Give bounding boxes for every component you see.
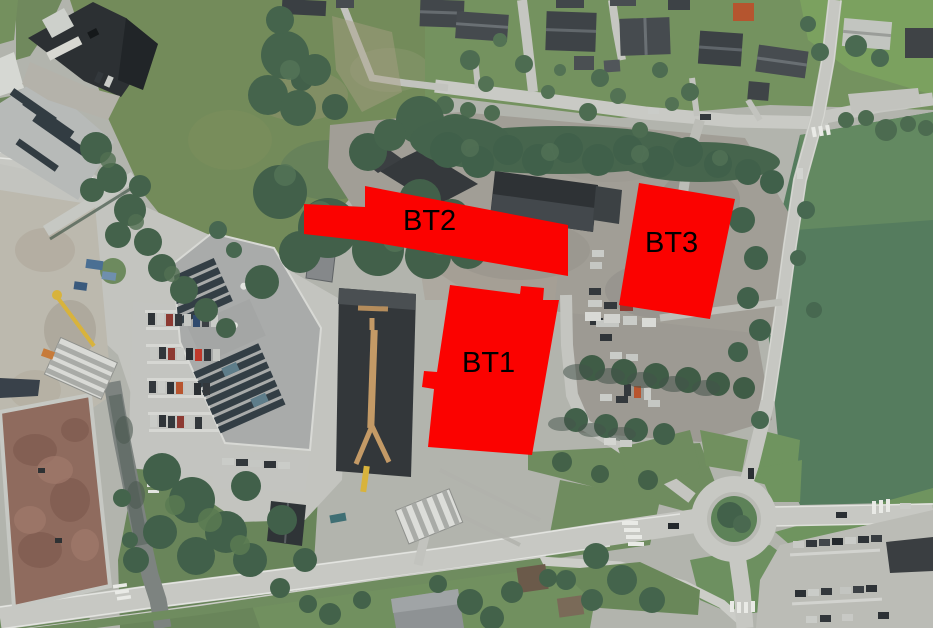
svg-text:BT2: BT2 xyxy=(403,205,456,237)
svg-text:BT3: BT3 xyxy=(645,227,698,259)
svg-text:BT1: BT1 xyxy=(462,347,515,379)
